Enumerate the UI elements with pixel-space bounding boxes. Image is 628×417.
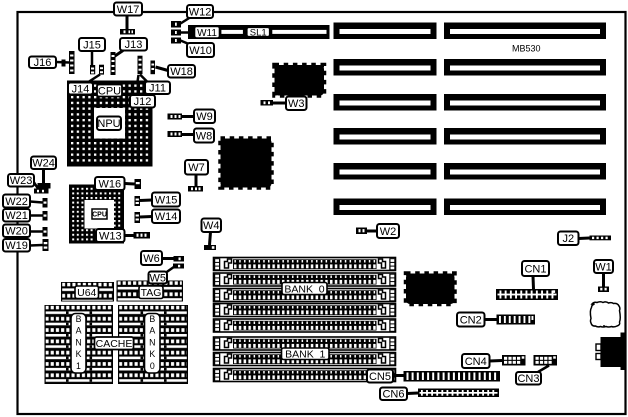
svg-text:A: A [76,326,82,336]
svg-text:CPU: CPU [98,86,121,98]
svg-text:W4: W4 [203,220,220,232]
svg-text:CN2: CN2 [460,315,482,327]
svg-text:W22: W22 [5,196,28,208]
svg-text:W18: W18 [170,66,193,78]
svg-text:MB530: MB530 [512,44,541,54]
svg-text:W3: W3 [288,98,305,110]
svg-text:CN6: CN6 [382,389,404,401]
svg-text:W19: W19 [5,240,28,252]
svg-text:K: K [149,349,155,359]
svg-text:J16: J16 [34,57,52,69]
svg-text:W13: W13 [99,231,122,243]
svg-text:W6: W6 [143,253,160,265]
svg-text:W11: W11 [197,28,217,39]
svg-text:0: 0 [150,361,155,371]
svg-text:K: K [76,349,82,359]
svg-text:BANK 1: BANK 1 [285,349,325,361]
svg-text:W12: W12 [189,7,212,19]
svg-text:W15: W15 [155,195,178,207]
svg-text:J12: J12 [134,96,152,108]
svg-text:W14: W14 [155,211,178,223]
svg-text:W1: W1 [595,262,612,274]
svg-text:J13: J13 [125,39,143,51]
svg-text:TAG: TAG [141,287,162,299]
svg-text:W24: W24 [32,158,55,170]
svg-text:W5: W5 [150,273,167,285]
svg-text:W23: W23 [10,175,33,187]
svg-text:B: B [149,314,155,324]
svg-text:W10: W10 [189,45,212,57]
svg-text:N: N [149,337,155,347]
svg-text:A: A [149,326,155,336]
svg-text:W7: W7 [188,162,205,174]
svg-text:J15: J15 [83,40,101,52]
svg-text:J14: J14 [72,84,90,96]
svg-text:W2: W2 [380,226,397,238]
svg-text:J2: J2 [562,233,574,245]
svg-text:W17: W17 [117,4,140,16]
svg-text:CN5: CN5 [369,371,391,383]
svg-text:B: B [76,314,82,324]
svg-text:CN1: CN1 [524,264,546,276]
svg-text:BANK 0: BANK 0 [284,283,324,295]
svg-text:W9: W9 [196,111,213,123]
svg-text:CN4: CN4 [465,356,487,368]
svg-text:W16: W16 [98,179,121,191]
svg-text:W20: W20 [5,226,28,238]
svg-text:N: N [75,337,81,347]
svg-text:1: 1 [76,361,81,371]
svg-text:CACHE: CACHE [96,338,133,350]
svg-text:W21: W21 [5,210,28,222]
svg-text:SL1: SL1 [250,27,267,38]
svg-text:J11: J11 [149,83,166,95]
svg-text:U64: U64 [77,287,96,299]
svg-text:CN3: CN3 [517,373,539,385]
svg-text:NPU: NPU [97,118,120,130]
svg-text:W8: W8 [196,131,213,143]
svg-text:CPU: CPU [92,212,107,219]
